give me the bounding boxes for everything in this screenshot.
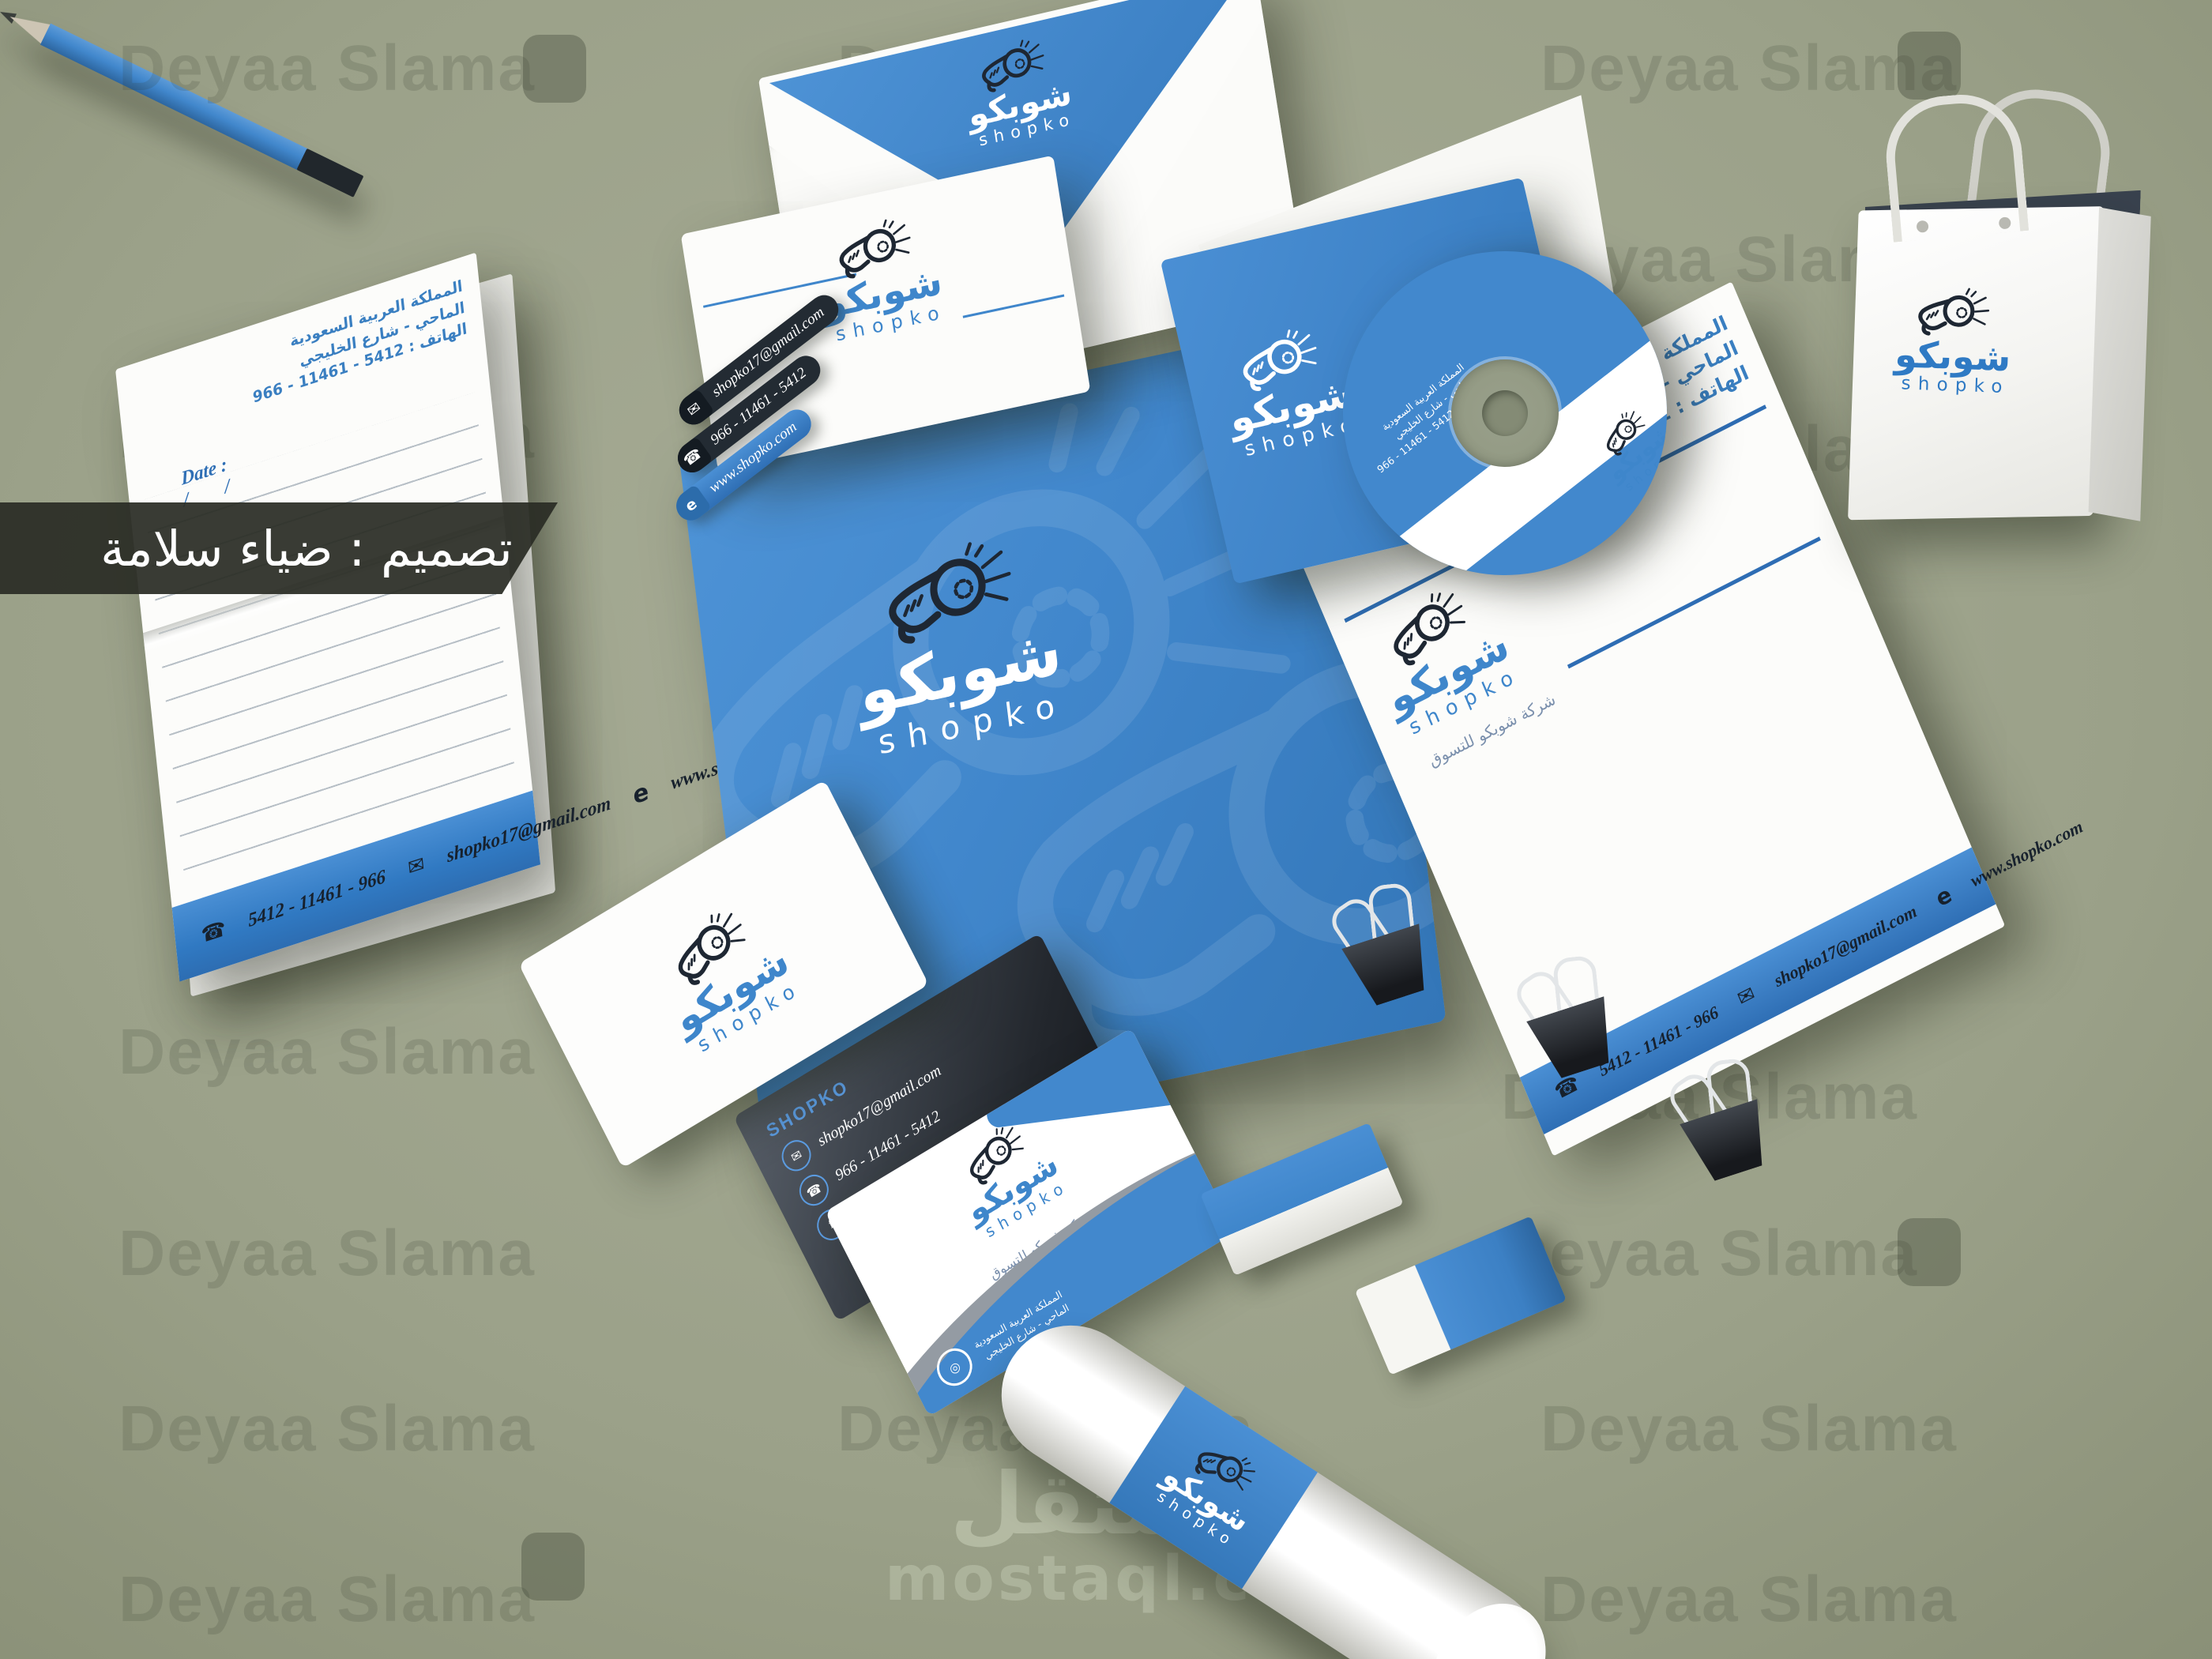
logo-latin: shopko (1894, 374, 2010, 397)
cd-hole (1473, 382, 1537, 445)
watermark-square (523, 35, 586, 103)
footer-email: shopko17@gmail.com (446, 792, 611, 867)
notepad: المملكة العربية السعودية الماحي - شارع ا… (115, 252, 540, 981)
phone-icon: ☎ (794, 1169, 833, 1212)
shopping-bag: شوبكو shopko (1833, 85, 2180, 555)
bag-side-face (2089, 207, 2151, 521)
watermark-square (521, 1533, 585, 1601)
email-icon: ✉ (1734, 982, 1759, 1012)
watermark-text: Deyaa Slama (118, 1563, 536, 1637)
letterhead-rule-2 (1567, 536, 1821, 668)
pencil-cap (296, 149, 363, 197)
cd-sleeve-logo: شوبكو shopko (1213, 318, 1362, 461)
card-logo: شوبكو shopko (643, 889, 805, 1059)
watermark-text: Deyaa Slama (118, 32, 536, 106)
watermark-text: Deyaa Slama (118, 1015, 536, 1089)
notepad-header: المملكة العربية السعودية الماحي - شارع ا… (247, 276, 468, 409)
pencil-graphite (0, 7, 17, 24)
bag-logo: شوبكو shopko (1894, 284, 2014, 397)
eraser (1355, 1216, 1567, 1375)
designer-banner: تصميم : ضياء سلامة (0, 502, 558, 594)
watermark-text: Deyaa Slama (1540, 1563, 1958, 1637)
logo-arabic: شوبكو (1894, 336, 2011, 376)
email-icon: ✉ (407, 852, 426, 881)
phone-icon: ☎ (200, 916, 227, 949)
email-icon: ✉ (673, 388, 714, 431)
folder-logo: شوبكو shopko (843, 525, 1070, 763)
web-icon: e (1932, 881, 1955, 912)
eraser (1200, 1123, 1403, 1276)
designer-banner-text: تصميم : ضياء سلامة (45, 520, 513, 577)
footer-email: shopko17@gmail.com (1771, 901, 1920, 991)
web-icon: e (632, 777, 650, 811)
card-rule-right (963, 295, 1064, 318)
watermark-square (1898, 1218, 1961, 1286)
footer-website: www.shopko.com (1967, 816, 2086, 891)
stationery-mockup-scene: Deyaa Slama Deyaa Slama Deyaa Slama Deya… (0, 0, 2212, 1659)
watermark-text: Deyaa Slama (1540, 1392, 1958, 1466)
email-icon: ✉ (777, 1134, 816, 1177)
watermark-text: Deyaa Slama (1501, 1217, 1918, 1291)
tube-logo: شوبكو shopko (1149, 1424, 1278, 1551)
watermark-text: Deyaa Slama (118, 1217, 536, 1291)
watermark-text: Deyaa Slama (118, 1392, 536, 1466)
